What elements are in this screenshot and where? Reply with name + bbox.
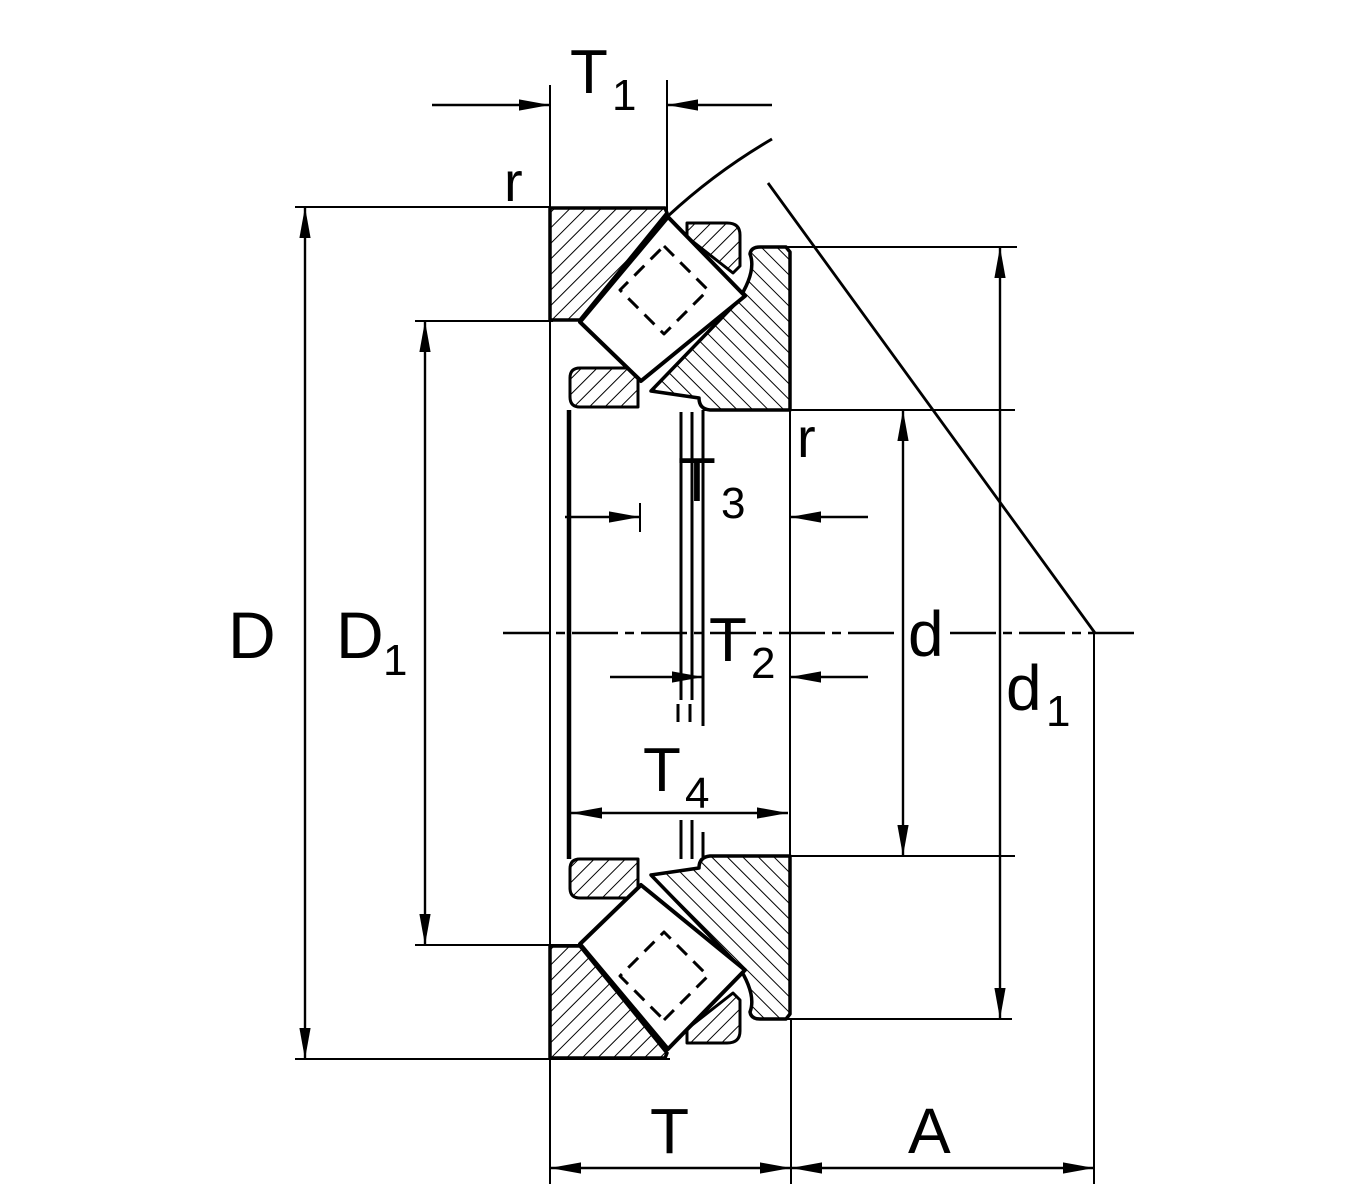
- label-r-top: r: [504, 150, 523, 213]
- label-T4: T: [643, 736, 681, 805]
- label-d: d: [908, 598, 944, 670]
- label-T: T: [650, 1095, 689, 1167]
- cage-section-inner-bottom: [570, 859, 638, 898]
- top-half-section: [550, 208, 790, 410]
- label-T2-sub: 2: [751, 639, 775, 688]
- raceway-sphere-arc: [668, 139, 772, 216]
- label-d1-sub: 1: [1046, 687, 1070, 736]
- label-d1: d: [1006, 652, 1042, 724]
- label-D: D: [228, 598, 276, 672]
- sphere-radius-reference-line: [768, 183, 1095, 633]
- label-T2: T: [709, 606, 747, 675]
- label-D1-sub: 1: [383, 636, 407, 685]
- bearing-drawing-canvas: T 1 r r T 3 T 2 T 4 D D 1 d d 1 T A: [0, 0, 1350, 1200]
- bottom-half-section: [550, 856, 790, 1058]
- label-D1: D: [336, 598, 384, 672]
- label-T3-sub: 3: [721, 479, 745, 528]
- label-T3: T: [678, 446, 716, 515]
- cage-section-inner-top: [570, 368, 638, 407]
- label-T1: T: [570, 38, 608, 107]
- bearing-cross-section-svg: T 1 r r T 3 T 2 T 4 D D 1 d d 1 T A: [0, 0, 1350, 1200]
- label-T1-sub: 1: [612, 71, 636, 120]
- label-T4-sub: 4: [685, 769, 709, 818]
- label-A: A: [908, 1095, 951, 1167]
- label-r-inner: r: [797, 406, 816, 469]
